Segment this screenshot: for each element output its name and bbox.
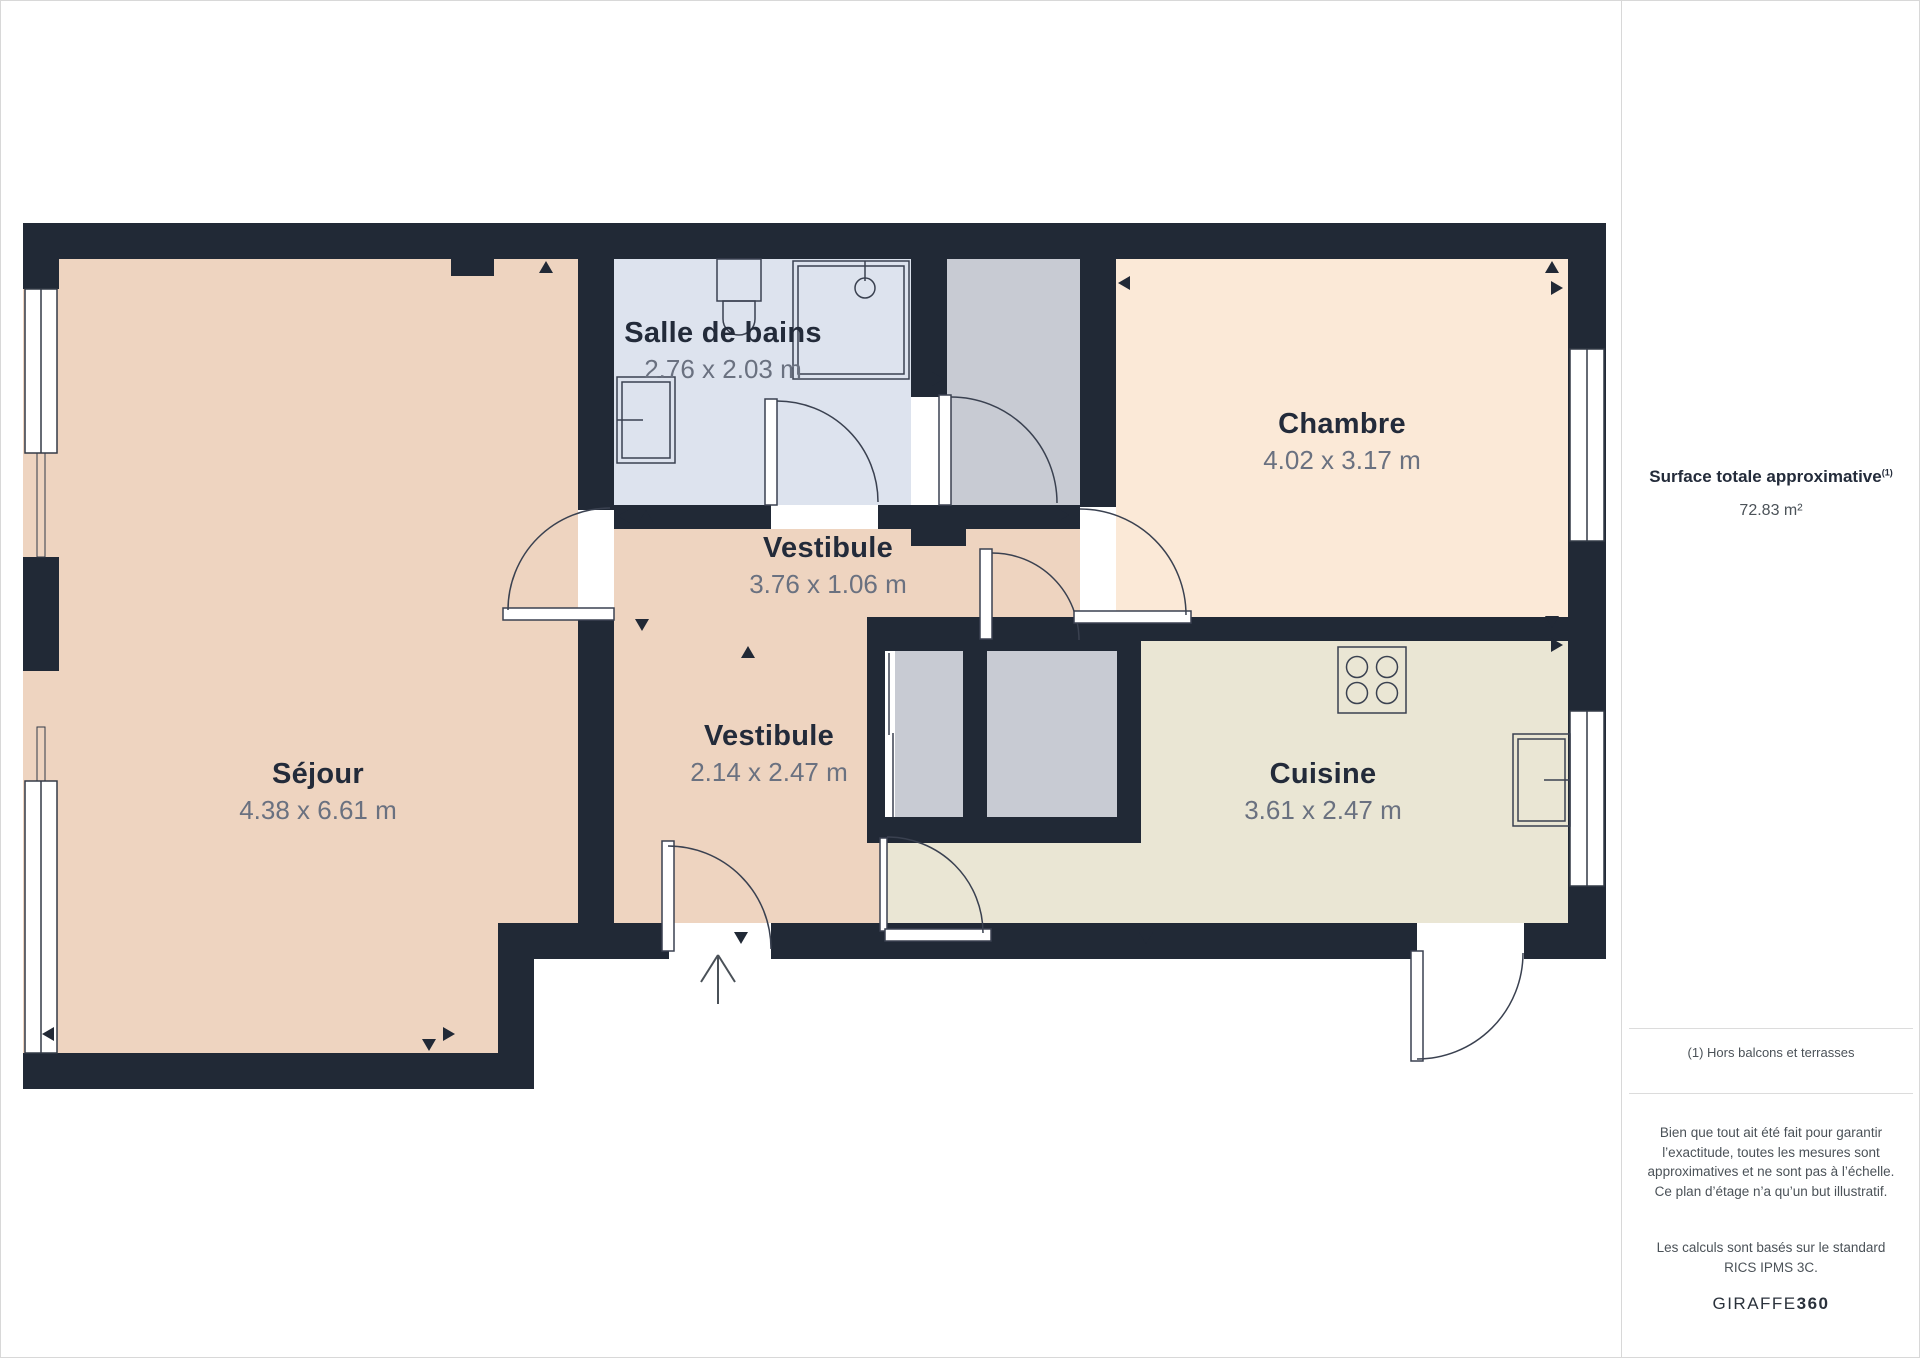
divider [1629,1093,1913,1094]
closet-left [893,651,963,817]
giraffe360-logo: GIRAFFE360 [1622,1294,1920,1314]
closet-slider-icon [885,651,895,817]
brand-bold: 360 [1797,1294,1830,1313]
closets [893,651,1117,817]
info-sidebar: Surface totale approximative(1) 72.83 m²… [1621,1,1920,1358]
surface-total-block: Surface totale approximative(1) 72.83 m² [1622,467,1920,520]
footnote: (1) Hors balcons et terrasses [1622,1045,1920,1060]
surface-total-title: Surface totale approximative(1) [1622,467,1920,487]
entry-opening [669,923,771,959]
floor-chambre [1116,259,1568,641]
surface-total-value: 72.83 m² [1622,502,1920,520]
disclaimer-text: Bien que tout ait été fait pour garantir… [1642,1123,1900,1201]
surface-title-text: Surface totale approximative [1649,467,1881,486]
floor-vestibule-bas [614,617,881,927]
divider [1629,1028,1913,1029]
surface-title-superscript: (1) [1882,467,1893,477]
balcony-door [1411,951,1523,1061]
floor-vestibule-haut [614,529,1080,617]
entry-arrow-icon [701,955,735,1004]
balcony-opening [1417,923,1524,959]
floor-plan-page: Séjour 4.38 x 6.61 m Salle de bains 2.76… [0,0,1920,1358]
floor-sejour [23,259,578,1053]
standard-text: Les calculs sont basés sur le standard R… [1642,1238,1900,1277]
brand-regular: GIRAFFE [1712,1294,1796,1313]
floor-placard-haut [947,259,1080,505]
closet-right [987,651,1117,817]
